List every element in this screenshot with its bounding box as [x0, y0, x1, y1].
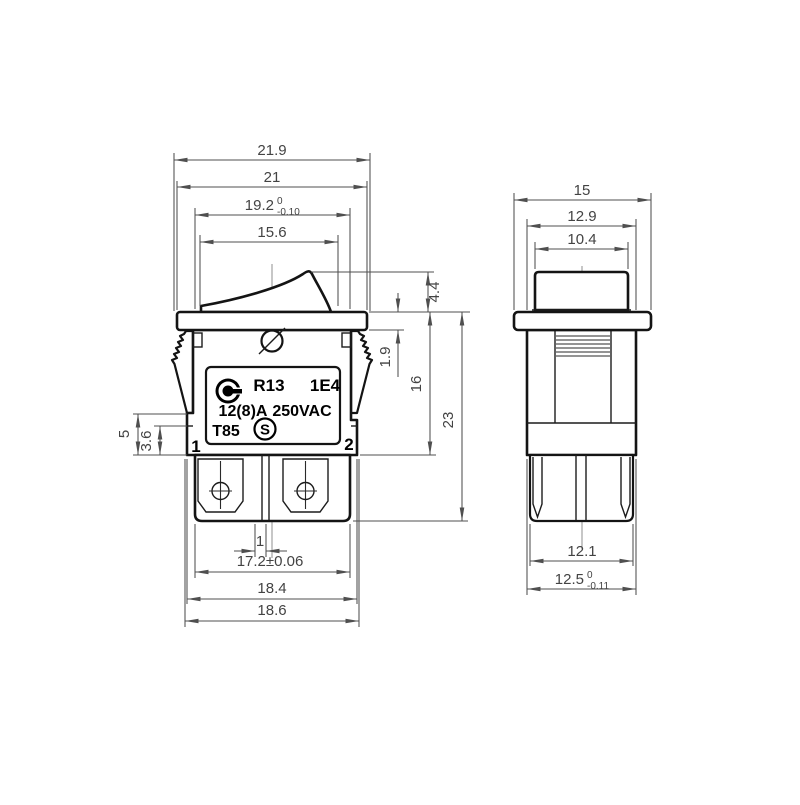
plate-model: R13 — [253, 376, 284, 395]
terminal-block — [195, 455, 350, 521]
plate-temp-rating: T85 — [212, 423, 240, 440]
technical-drawing-page: R13 1E4 12(8)A 250VAC T85 S 1 2 — [0, 0, 800, 800]
svg-text:1: 1 — [256, 533, 264, 550]
svg-text:12.5: 12.5 — [555, 571, 584, 588]
svg-text:19.2: 19.2 — [245, 197, 274, 214]
svg-text:10.4: 10.4 — [567, 231, 596, 248]
plate-current-rating: 12(8)A — [219, 403, 268, 420]
plate-voltage-rating: 250VAC — [272, 403, 332, 420]
mounting-flange — [177, 312, 367, 330]
snap-leg-right — [351, 331, 372, 413]
dim-body-depth: 16 — [408, 312, 430, 455]
svg-text:17.2±0.06: 17.2±0.06 — [237, 553, 304, 570]
side-body — [527, 330, 636, 455]
svg-text:15.6: 15.6 — [257, 224, 286, 241]
dim-total-depth: 23 — [440, 312, 462, 521]
dim-side-button-width: 10.4 — [535, 231, 628, 269]
svg-text:18.4: 18.4 — [257, 580, 286, 597]
svg-text:12.9: 12.9 — [567, 208, 596, 225]
svg-text:18.6: 18.6 — [257, 602, 286, 619]
side-view — [514, 266, 651, 549]
dim-leg-step-height: 3.6 — [138, 426, 160, 455]
front-view: R13 1E4 12(8)A 250VAC T85 S 1 2 — [172, 264, 372, 558]
svg-text:23: 23 — [440, 412, 457, 429]
svg-text:21.9: 21.9 — [257, 142, 286, 159]
svg-text:21: 21 — [264, 169, 281, 186]
plate-type-code: 1E4 — [310, 376, 341, 395]
svg-text:16: 16 — [408, 376, 425, 393]
side-terminal-shell — [530, 455, 633, 521]
svg-text:4.4: 4.4 — [426, 282, 443, 303]
svg-text:-0.11: -0.11 — [587, 581, 609, 592]
svg-text:3.6: 3.6 — [138, 431, 155, 452]
dim-flange-thickness: 1.9 — [377, 293, 398, 377]
side-button — [535, 272, 628, 310]
terminal-number-2: 2 — [344, 435, 353, 454]
snap-leg-left — [172, 331, 193, 413]
svg-text:0: 0 — [587, 570, 593, 581]
svg-text:-0.10: -0.10 — [277, 207, 300, 218]
svg-text:S: S — [260, 422, 270, 439]
dim-leg-tip-height: 5 — [116, 414, 138, 455]
svg-text:1.9: 1.9 — [377, 347, 394, 368]
side-flange — [514, 312, 651, 330]
svg-text:15: 15 — [574, 182, 591, 199]
dim-rocker-height: 4.4 — [426, 272, 443, 312]
rocker-switch-drawing: R13 1E4 12(8)A 250VAC T85 S 1 2 — [0, 0, 800, 800]
rocker-actuator — [201, 271, 331, 312]
s-mark-icon: S — [255, 419, 276, 440]
svg-text:12.1: 12.1 — [567, 543, 596, 560]
svg-text:5: 5 — [116, 430, 133, 438]
rating-plate: R13 1E4 12(8)A 250VAC T85 S — [206, 367, 341, 444]
terminal-number-1: 1 — [191, 437, 200, 456]
svg-text:0: 0 — [277, 196, 283, 207]
